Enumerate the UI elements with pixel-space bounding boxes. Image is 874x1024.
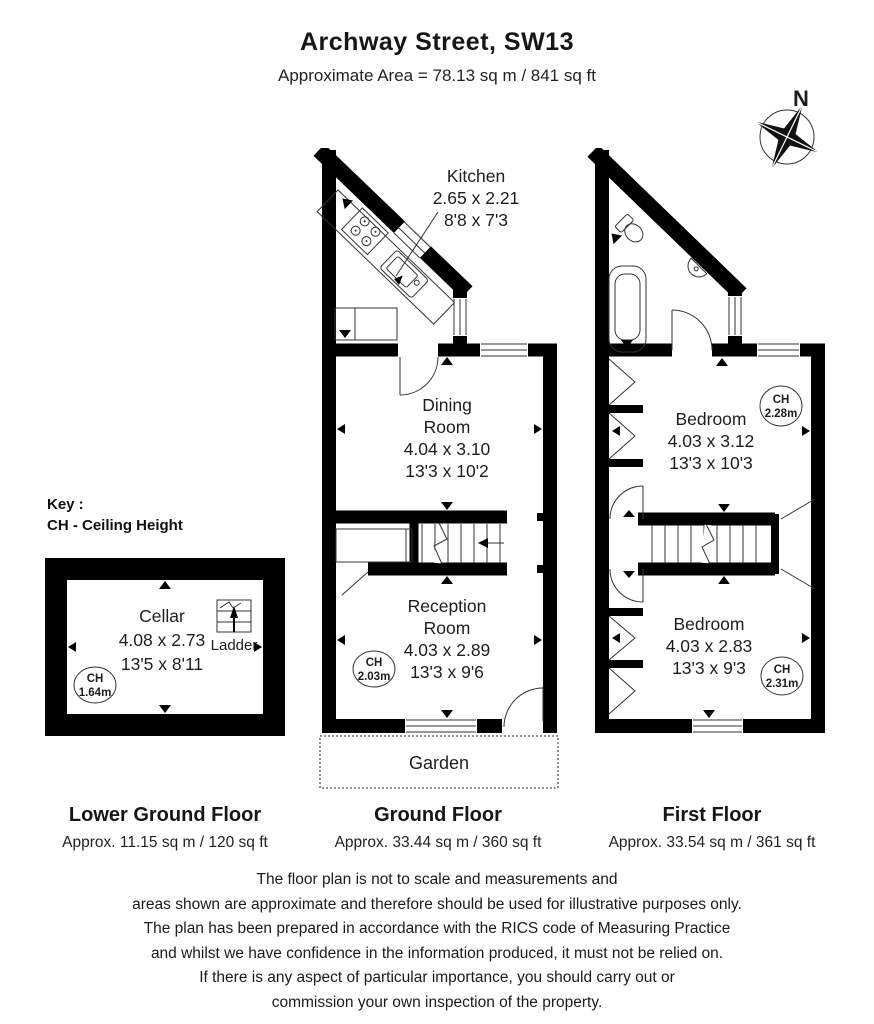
svg-text:2.28m: 2.28m xyxy=(765,408,798,420)
lower-ground-floor-plan: Cellar 4.08 x 2.73 13'5 x 8'11 Ladder CH… xyxy=(40,548,290,748)
reception-imperial: 13'3 x 9'6 xyxy=(410,662,484,682)
ladder-label: Ladder xyxy=(211,637,258,654)
reception-door xyxy=(504,687,543,727)
bedroom1-name: Bedroom xyxy=(675,409,746,429)
bedroom1-door xyxy=(781,499,815,519)
ground-floor-plan: Kitchen 2.65 x 2.21 8'8 x 7'3 Dining Roo… xyxy=(310,148,570,803)
floorplan-page: Archway Street, SW13 Approximate Area = … xyxy=(0,0,874,1024)
bedroom2-window xyxy=(692,719,743,733)
kitchen-metric: 2.65 x 2.21 xyxy=(433,188,520,208)
dining-imperial: 13'3 x 10'2 xyxy=(405,461,489,481)
caption-ground: Ground Floor Approx. 33.44 sq m / 360 sq… xyxy=(288,804,588,852)
toilet-icon xyxy=(615,214,648,247)
ceiling-height-badge-bedroom1: CH 2.28m xyxy=(760,386,802,426)
bathtub-icon xyxy=(609,266,646,352)
stair-direction-arrow xyxy=(478,538,488,548)
dining-name-1: Dining xyxy=(422,395,472,415)
bedroom2-name: Bedroom xyxy=(673,614,744,634)
bedroom2-wardrobe xyxy=(609,608,643,714)
ground-floor-name: Ground Floor xyxy=(288,804,588,827)
understairs-cupboard xyxy=(336,529,412,562)
lower-ground-floor-area: Approx. 11.15 sq m / 120 sq ft xyxy=(15,834,315,852)
first-floor-plan: Bedroom 4.03 x 3.12 13'3 x 10'3 CH 2.28m… xyxy=(585,148,845,803)
ceiling-height-badge-reception: CH 2.03m xyxy=(353,651,395,687)
cupboard-door xyxy=(342,572,368,595)
bedroom2-metric: 4.03 x 2.83 xyxy=(666,636,753,656)
reception-name-2: Room xyxy=(424,618,471,638)
reception-window xyxy=(405,719,477,733)
bathroom-window xyxy=(728,296,742,336)
dining-metric: 4.04 x 3.10 xyxy=(404,439,491,459)
ceiling-height-badge-bedroom2: CH 2.31m xyxy=(761,657,803,695)
svg-text:1.64m: 1.64m xyxy=(79,687,112,699)
kitchen-side-window xyxy=(453,298,467,336)
bedroom1-wardrobe xyxy=(609,359,643,467)
lower-ground-floor-name: Lower Ground Floor xyxy=(15,804,315,827)
first-floor-name: First Floor xyxy=(562,804,862,827)
svg-text:CH: CH xyxy=(773,394,790,406)
dining-name-2: Room xyxy=(424,417,471,437)
cellar-metric: 4.08 x 2.73 xyxy=(119,630,206,650)
bedroom2-door xyxy=(781,569,815,589)
dining-door xyxy=(400,357,438,395)
bedroom1-imperial: 13'3 x 10'3 xyxy=(669,453,753,473)
reception-metric: 4.03 x 2.89 xyxy=(404,640,491,660)
svg-text:CH: CH xyxy=(366,657,383,669)
first-floor-area: Approx. 33.54 sq m / 361 sq ft xyxy=(562,834,862,852)
svg-text:CH: CH xyxy=(87,673,104,685)
svg-text:2.31m: 2.31m xyxy=(766,678,799,690)
reception-name-1: Reception xyxy=(408,596,487,616)
svg-text:CH: CH xyxy=(774,664,791,676)
first-floor-stairs xyxy=(610,486,815,602)
bedroom2-imperial: 13'3 x 9'3 xyxy=(672,658,746,678)
cellar-name: Cellar xyxy=(139,606,185,626)
kitchen-imperial: 8'8 x 7'3 xyxy=(444,210,508,230)
kitchen-name: Kitchen xyxy=(447,166,505,186)
cellar-imperial: 13'5 x 8'11 xyxy=(121,654,203,674)
caption-first: First Floor Approx. 33.54 sq m / 361 sq … xyxy=(562,804,862,852)
caption-lower-ground: Lower Ground Floor Approx. 11.15 sq m / … xyxy=(15,804,315,852)
garden-label: Garden xyxy=(409,753,469,773)
legend-key: Key : CH - Ceiling Height xyxy=(47,494,183,536)
key-title: Key : xyxy=(47,494,183,515)
bathroom-door xyxy=(672,310,712,350)
kitchen-measure-arrow xyxy=(338,194,353,209)
disclaimer-text: The floor plan is not to scale and measu… xyxy=(0,868,874,1015)
bedroom1-window xyxy=(757,343,800,357)
kitchen-unit xyxy=(335,308,397,340)
bedroom1-metric: 4.03 x 3.12 xyxy=(668,431,755,451)
key-ceiling-height: CH - Ceiling Height xyxy=(47,515,183,536)
dining-window xyxy=(480,343,528,357)
ground-floor-area: Approx. 33.44 sq m / 360 sq ft xyxy=(288,834,588,852)
svg-text:2.03m: 2.03m xyxy=(358,671,391,683)
page-title: Archway Street, SW13 xyxy=(0,28,874,57)
ground-stairs xyxy=(336,523,504,595)
